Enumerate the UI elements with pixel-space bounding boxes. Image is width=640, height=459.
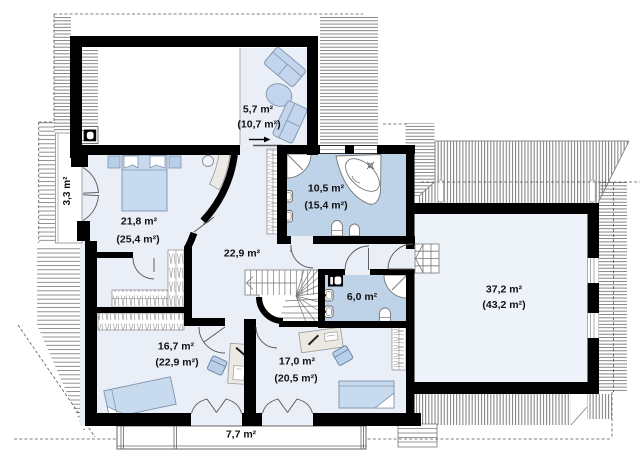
svg-text:17,0 m²: 17,0 m² bbox=[279, 356, 316, 368]
svg-text:(20,5 m²): (20,5 m²) bbox=[274, 373, 317, 385]
svg-text:16,7 m²: 16,7 m² bbox=[158, 341, 195, 353]
svg-text:(10,7 m²): (10,7 m²) bbox=[237, 119, 280, 131]
svg-text:6,0 m²: 6,0 m² bbox=[347, 291, 378, 303]
svg-text:(25,4 m²): (25,4 m²) bbox=[116, 234, 159, 246]
svg-text:10,5 m²: 10,5 m² bbox=[308, 183, 345, 195]
svg-text:22,9 m²: 22,9 m² bbox=[224, 248, 261, 260]
svg-text:37,2 m²: 37,2 m² bbox=[486, 284, 523, 296]
svg-text:(43,2 m²): (43,2 m²) bbox=[482, 299, 525, 311]
svg-text:(22,9 m²): (22,9 m²) bbox=[155, 357, 198, 369]
svg-text:(15,4 m²): (15,4 m²) bbox=[304, 200, 347, 212]
svg-text:7,7 m²: 7,7 m² bbox=[226, 429, 257, 441]
svg-text:21,8 m²: 21,8 m² bbox=[121, 216, 158, 228]
svg-text:5,7 m²: 5,7 m² bbox=[243, 104, 274, 116]
svg-text:3,3 m²: 3,3 m² bbox=[62, 176, 73, 206]
